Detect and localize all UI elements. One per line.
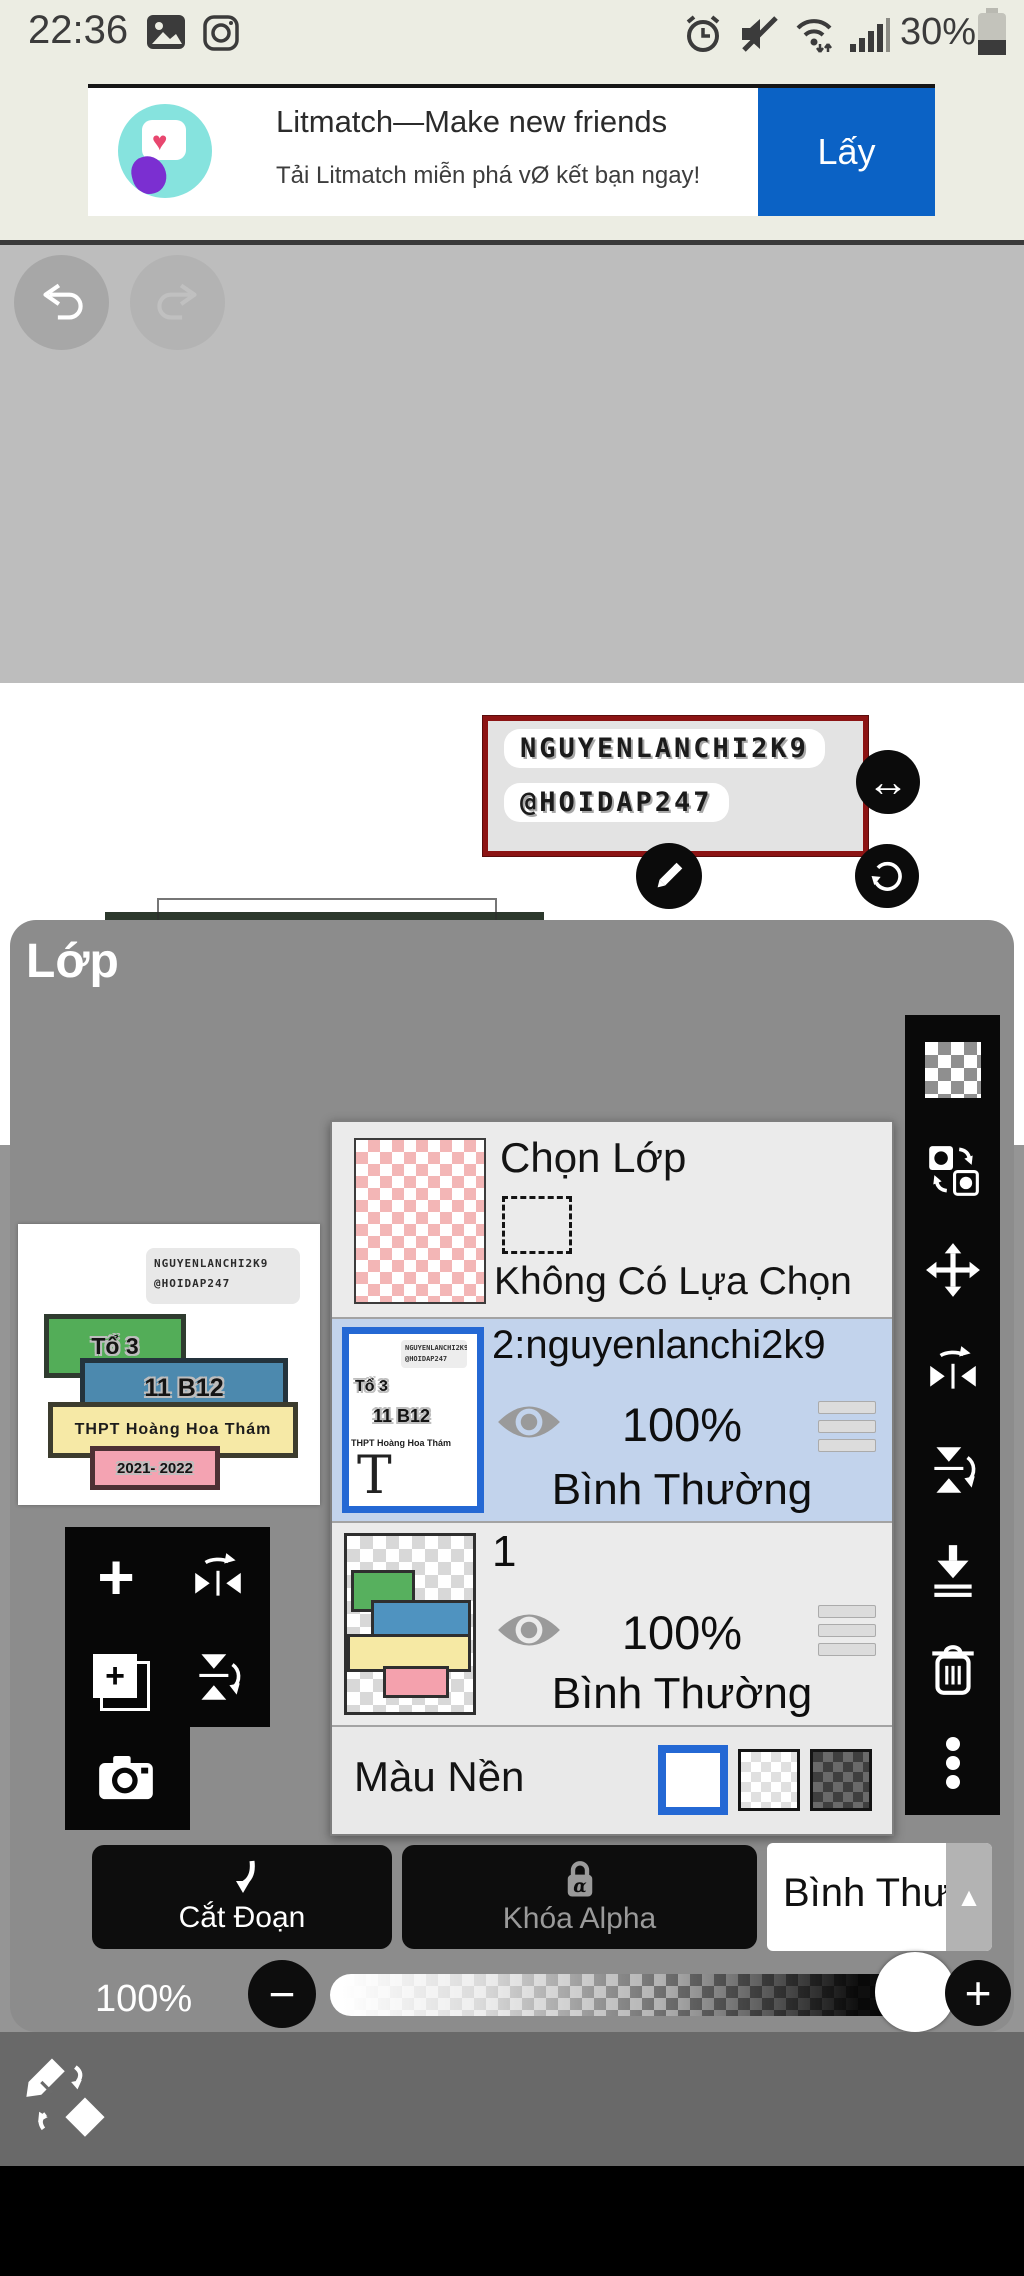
battery-icon (976, 8, 1008, 56)
camera-icon (98, 1753, 154, 1801)
ad-cta-button[interactable]: Lấy (758, 88, 935, 216)
layer-2-name: 2:nguyenlanchi2k9 (492, 1323, 826, 1368)
layer-1-opacity: 100% (582, 1605, 782, 1660)
selection-layer-thumbnail[interactable] (354, 1138, 486, 1304)
dots-icon (946, 1737, 960, 1751)
dialog-title: Chọn Lớp (500, 1134, 686, 1182)
flip-horizontal-layer-button[interactable] (905, 1320, 1000, 1420)
eye-icon (496, 1607, 562, 1653)
rotate-icon (867, 856, 907, 896)
resize-handle[interactable]: ↔ (856, 750, 920, 814)
artwork-preview-thumbnail[interactable]: NGUYENLANCHI2K9 @HOIDAP247 Tổ 3 11 B12 T… (18, 1224, 320, 1505)
delete-layer-button[interactable] (905, 1620, 1000, 1720)
clipping-button[interactable]: Cắt Đoạn (92, 1845, 392, 1949)
preview-credit-line1: NGUYENLANCHI2K9 (154, 1254, 292, 1274)
opacity-increase-button[interactable]: + (945, 1960, 1011, 2026)
plus-icon: + (965, 1966, 992, 2020)
status-bar: 22:36 30% (0, 0, 1024, 62)
add-layer-button[interactable]: + (65, 1527, 167, 1627)
clip-arrow-icon (224, 1859, 260, 1899)
layer-2-thumbnail[interactable]: NGUYENLANCHI2K9 @HOIDAP247 Tổ 3 11 B12 T… (342, 1327, 484, 1513)
preview-pink-banner: 2021- 2022 (90, 1446, 220, 1490)
gallery-notification-icon (146, 14, 186, 50)
layer-1-blend-mode: Bình Thường (492, 1669, 872, 1719)
android-nav-bar (0, 2166, 1024, 2276)
flip-vertical-layer-button[interactable] (905, 1420, 1000, 1520)
background-color-label: Màu Nền (354, 1753, 524, 1801)
opacity-slider-track[interactable] (330, 1974, 930, 2016)
background-color-row: Màu Nền (332, 1727, 892, 1834)
minus-icon: − (269, 1967, 296, 2021)
layer-2-visibility-toggle[interactable] (496, 1399, 562, 1445)
layers-panel-title: Lớp (26, 934, 119, 989)
rotate-handle[interactable] (855, 844, 919, 908)
bg-color-dark-transparent-swatch[interactable] (810, 1749, 872, 1811)
opacity-value-label: 100% (95, 1978, 192, 2021)
flip-horizontal-button[interactable] (167, 1527, 269, 1627)
layer-dialog-header: Chọn Lớp Không Có Lựa Chọn (332, 1122, 892, 1317)
instagram-notification-icon (202, 14, 240, 52)
bg-color-white-swatch[interactable] (658, 1745, 728, 1815)
selection-marquee-icon (502, 1196, 572, 1254)
heart-icon: ♥ (152, 126, 167, 157)
layer-2-drag-handle[interactable] (818, 1401, 876, 1458)
flip-horizontal-icon (189, 1548, 247, 1606)
layer-1-name: 1 (492, 1527, 516, 1577)
alpha-lock-button[interactable]: α Khóa Alpha (402, 1845, 757, 1949)
signal-icon (850, 18, 892, 52)
layer-menu-button[interactable] (905, 1720, 1000, 1820)
message-bubble-shape: ♥ (142, 120, 186, 160)
layer-row-2[interactable]: NGUYENLANCHI2K9 @HOIDAP247 Tổ 3 11 B12 T… (332, 1319, 892, 1521)
transparency-background-button[interactable] (905, 1020, 1000, 1120)
preview-credit-line2: @HOIDAP247 (154, 1274, 292, 1294)
layer-list-dialog: Chọn Lớp Không Có Lựa Chọn NGUYENLANCHI2… (330, 1120, 894, 1836)
ad-subtitle: Tải Litmatch miễn phá vØ kết bạn ngay! (276, 162, 700, 190)
pen-eraser-swap-icon (20, 2050, 118, 2148)
pencil-icon (650, 857, 688, 895)
dropdown-arrow[interactable]: ▲ (946, 1843, 992, 1951)
selected-text-line1: NGUYENLANCHI2K9 (504, 729, 825, 768)
opacity-slider-knob[interactable] (875, 1952, 955, 2032)
alpha-lock-icon: α (562, 1858, 598, 1900)
layer-1-thumbnail[interactable] (344, 1533, 476, 1715)
flip-vertical-button[interactable] (167, 1627, 269, 1727)
preview-credit-pill: NGUYENLANCHI2K9 @HOIDAP247 (146, 1248, 300, 1304)
swap-layers-icon (924, 1141, 982, 1199)
mute-icon (738, 14, 780, 54)
layer-actions-toolbar (905, 1015, 1000, 1815)
flip-vertical-icon (924, 1441, 982, 1499)
text-selection-box[interactable]: NGUYENLANCHI2K9 @HOIDAP247 (483, 716, 868, 856)
trash-icon (924, 1641, 982, 1699)
move-layer-button[interactable] (905, 1220, 1000, 1320)
plus-icon: + (97, 1545, 134, 1609)
battery-percent: 30% (900, 11, 976, 54)
layer-2-blend-mode: Bình Thường (492, 1465, 872, 1515)
canvas-pasteboard[interactable] (0, 245, 1024, 683)
layer-camera-toolbar (65, 1727, 190, 1830)
wifi-icon (792, 14, 840, 56)
up-triangle-icon: ▲ (956, 1882, 982, 1913)
bg-color-transparent-swatch[interactable] (738, 1749, 800, 1811)
ad-card[interactable]: ♥ Litmatch—Make new friends Tải Litmatch… (88, 84, 935, 216)
redo-button[interactable] (130, 255, 225, 350)
import-photo-button[interactable] (75, 1727, 177, 1827)
layer-2-opacity: 100% (582, 1397, 782, 1452)
blend-mode-dropdown[interactable]: Bình Thường ▲ (767, 1843, 992, 1951)
duplicate-icon: + (93, 1654, 139, 1700)
flip-vertical-icon (189, 1648, 247, 1706)
selected-text-line2: @HOIDAP247 (504, 783, 729, 822)
resize-icon: ↔ (867, 758, 909, 806)
opacity-decrease-button[interactable]: − (248, 1960, 316, 2028)
convert-layer-button[interactable] (905, 1120, 1000, 1220)
alarm-icon (682, 14, 724, 54)
duplicate-layer-button[interactable]: + (65, 1627, 167, 1727)
undo-button[interactable] (14, 255, 109, 350)
flip-horizontal-icon (924, 1341, 982, 1399)
checkerboard-icon (925, 1042, 981, 1098)
no-selection-label: Không Có Lựa Chọn (494, 1260, 852, 1304)
text-layer-T-mark: T (357, 1446, 392, 1506)
eye-icon (496, 1399, 562, 1445)
layer-row-1[interactable]: 1 100% Bình Thường (332, 1523, 892, 1725)
ad-title: Litmatch—Make new friends (276, 104, 667, 140)
thumb-credit-pill: NGUYENLANCHI2K9 @HOIDAP247 (401, 1340, 467, 1368)
app-screen: 22:36 30% ♥ (0, 0, 1024, 2276)
layer-1-visibility-toggle[interactable] (496, 1607, 562, 1653)
pen-eraser-swap-tool[interactable] (14, 2046, 124, 2152)
move-icon (924, 1241, 982, 1299)
layer-quick-toolbar: + + (65, 1527, 270, 1727)
merge-down-button[interactable] (905, 1520, 1000, 1620)
clock: 22:36 (28, 8, 128, 53)
svg-text:α: α (573, 1877, 587, 1897)
edit-text-handle[interactable] (636, 843, 702, 909)
ad-banner-area: ♥ Litmatch—Make new friends Tải Litmatch… (0, 62, 1024, 240)
layer-1-drag-handle[interactable] (818, 1605, 876, 1662)
ad-app-icon: ♥ (118, 104, 212, 198)
main-toolbar: T 27 ↓ ← (0, 2032, 1024, 2166)
merge-down-icon (924, 1541, 982, 1599)
